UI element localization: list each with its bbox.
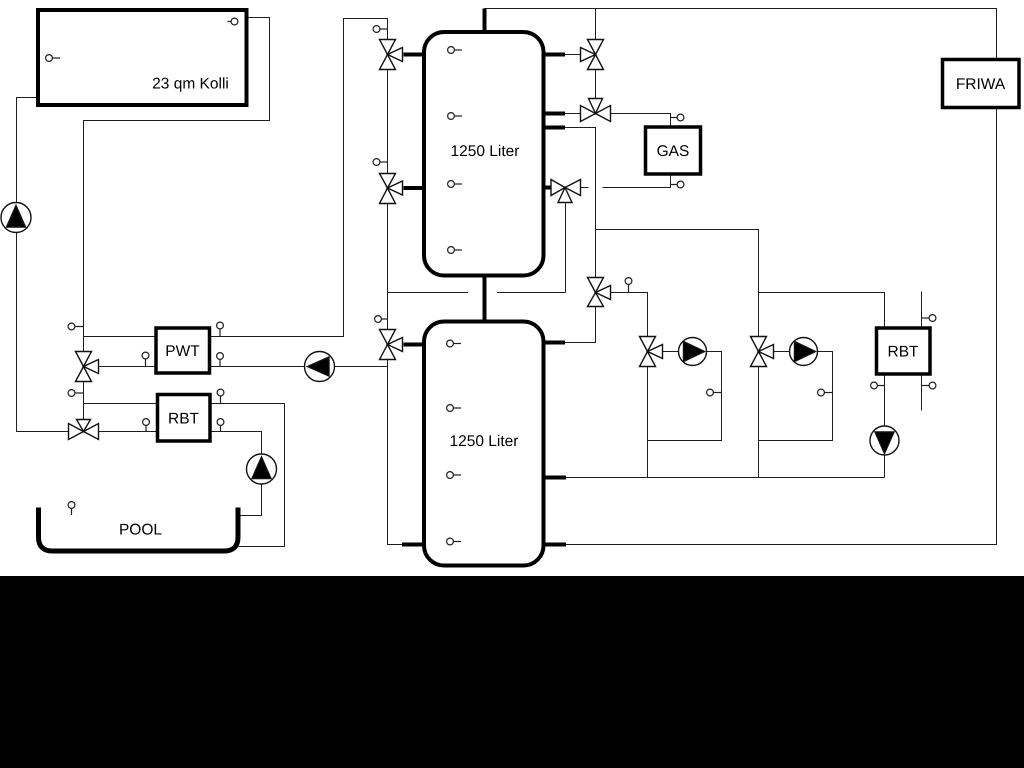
svg-text:POOL: POOL — [119, 522, 162, 539]
svg-text:RBT: RBT — [168, 411, 200, 428]
svg-text:RBT: RBT — [888, 344, 920, 361]
svg-text:1250 Liter: 1250 Liter — [451, 143, 520, 160]
svg-text:23 qm Kolli: 23 qm Kolli — [152, 76, 229, 93]
svg-text:GAS: GAS — [657, 143, 690, 160]
svg-text:PWT: PWT — [165, 343, 200, 360]
svg-text:FRIWA: FRIWA — [956, 76, 1006, 93]
svg-text:1250 Liter: 1250 Liter — [450, 433, 519, 450]
